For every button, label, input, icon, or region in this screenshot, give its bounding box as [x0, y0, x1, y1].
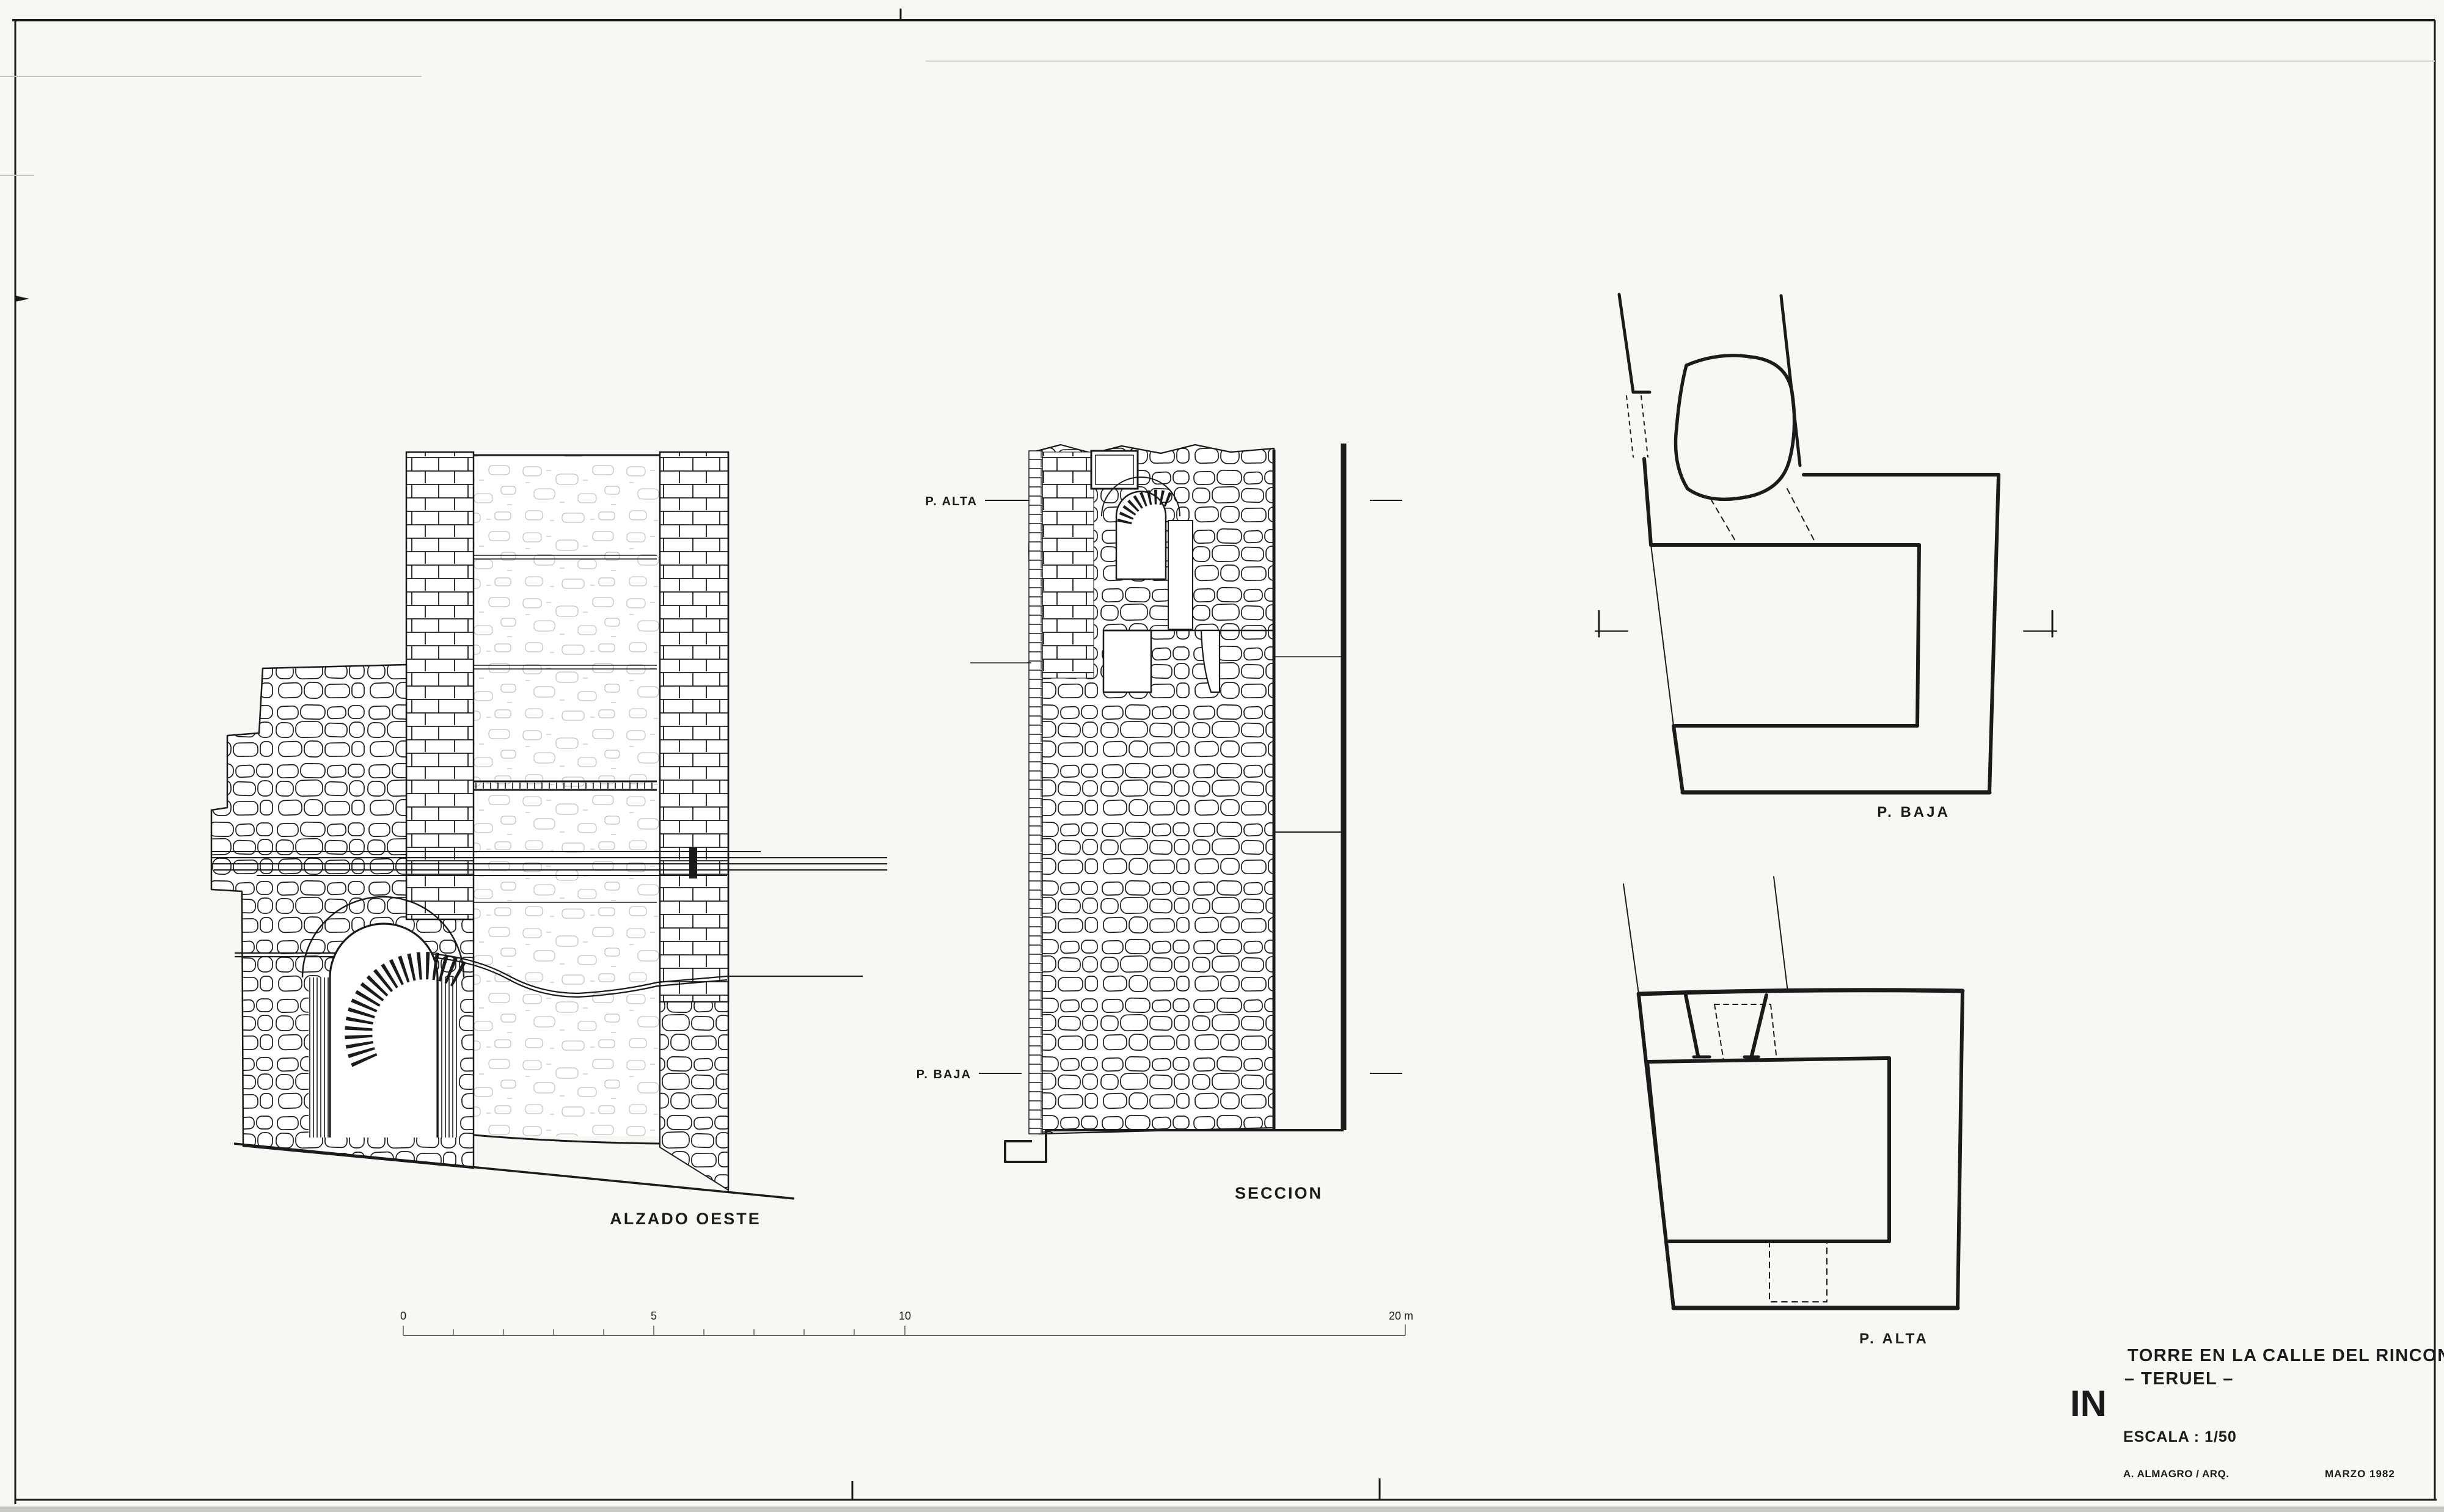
sheet-title-line1: TORRE EN LA CALLE DEL RINCON	[2128, 1346, 2444, 1365]
section-recess	[1168, 520, 1193, 629]
scanned-architectural-sheet: ALZADO OESTE	[0, 0, 2444, 1512]
elevation-datum-mark	[689, 847, 697, 878]
plan-upper-label: P. ALTA	[1859, 1331, 1929, 1347]
sheet-code: IN	[2070, 1383, 2107, 1424]
scale-tick-5: 5	[651, 1310, 657, 1322]
section-upper-floor-label: P. ALTA	[926, 495, 978, 508]
elevation-label: ALZADO OESTE	[610, 1210, 761, 1228]
section-interior	[1274, 444, 1344, 1130]
door-jamb-hatch	[437, 977, 458, 1138]
sheet-date: MARZO 1982	[2325, 1468, 2395, 1480]
sheet-author: A. ALMAGRO / ARQ.	[2123, 1468, 2229, 1480]
door-jamb-hatch	[309, 977, 330, 1138]
section-ashlar-patch	[1042, 452, 1094, 678]
elevation-core-panel	[474, 455, 660, 1136]
scan-edge-strip	[0, 1507, 2444, 1512]
section-window	[1091, 451, 1138, 489]
elevation-left-pier	[406, 452, 474, 919]
elevation-right-pier	[660, 452, 728, 1002]
section-quoin-strip	[1029, 451, 1042, 1134]
section-label: SECCION	[1235, 1184, 1323, 1202]
plan-ground-label: P. BAJA	[1877, 804, 1950, 820]
scale-tick-10: 10	[899, 1310, 911, 1322]
sheet-title-line2: – TERUEL –	[2124, 1369, 2234, 1389]
sheet-scale: ESCALA : 1/50	[2123, 1428, 2237, 1445]
drawing-canvas: ALZADO OESTE	[0, 0, 2444, 1512]
scale-tick-0: 0	[400, 1310, 406, 1322]
section-lower-floor-label: P. BAJA	[916, 1068, 971, 1081]
scale-tick-20m: 20 m	[1389, 1310, 1413, 1322]
